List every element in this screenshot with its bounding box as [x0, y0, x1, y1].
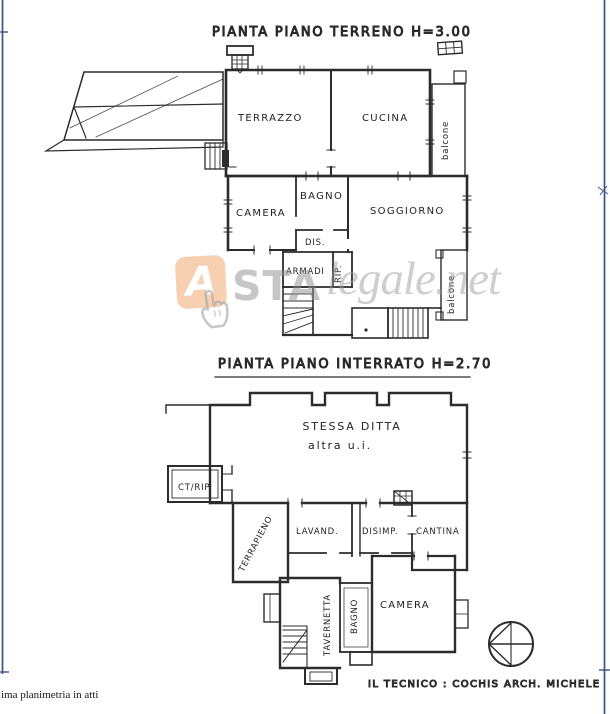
room-label-dis: DIS.: [305, 238, 325, 248]
room-label-stessa-ditta: STESSA DITTA: [302, 420, 401, 433]
room-label-bagno-basement: BAGNO: [350, 599, 360, 634]
basement-plan: PIANTA PIANO INTERRATO H=2.70: [166, 357, 600, 690]
canopy-roof: [46, 72, 223, 151]
technician-signature: IL TECNICO : COCHIS ARCH. MICHELE: [368, 679, 600, 690]
room-label-cantina: CANTINA: [416, 527, 460, 537]
floorplan-drawing: PIANTA PIANO TERRENO H=3.00: [0, 0, 610, 714]
north-arrow-icon: [489, 622, 533, 666]
room-label-balcone-upper: balcone: [441, 121, 451, 160]
ground-floor-title: PIANTA PIANO TERRENO H=3.00: [212, 25, 472, 40]
ground-floor-plan: PIANTA PIANO TERRENO H=3.00: [46, 25, 472, 338]
basement-title: PIANTA PIANO INTERRATO H=2.70: [218, 357, 492, 372]
room-label-disimp: DISIMP.: [362, 527, 398, 537]
room-label-lavand: LAVAND.: [296, 527, 339, 537]
straight-stairs: [352, 308, 428, 338]
room-label-altra-ui: altra u.i.: [308, 439, 372, 452]
room-label-camera-basement: CAMERA: [380, 600, 430, 611]
chimney-icon: [438, 41, 463, 55]
room-label-cucina: CUCINA: [362, 113, 408, 124]
basement-stairs: [283, 626, 307, 668]
room-label-terrapieno: TERRAPIENO: [237, 514, 275, 574]
room-label-tavernetta: TAVERNETTA: [323, 594, 333, 657]
winder-stairs: [283, 287, 313, 335]
room-label-rip: RIP.: [334, 265, 344, 283]
room-label-armadi: ARMADI: [286, 267, 325, 277]
room-label-camera: CAMERA: [236, 208, 286, 219]
room-label-ct-rip: CT/RIP.: [178, 483, 213, 493]
ground-floor-walls: [224, 66, 471, 335]
room-label-terrazzo: TERRAZZO: [237, 113, 303, 124]
room-label-balcone-lower: balcone: [447, 275, 457, 314]
scanned-floorplan-page: PIANTA PIANO TERRENO H=3.00: [0, 0, 610, 714]
room-label-soggiorno: SOGGIORNO: [370, 206, 445, 217]
room-label-bagno: BAGNO: [300, 191, 343, 202]
footer-note: ima planimetria in atti: [1, 689, 98, 701]
